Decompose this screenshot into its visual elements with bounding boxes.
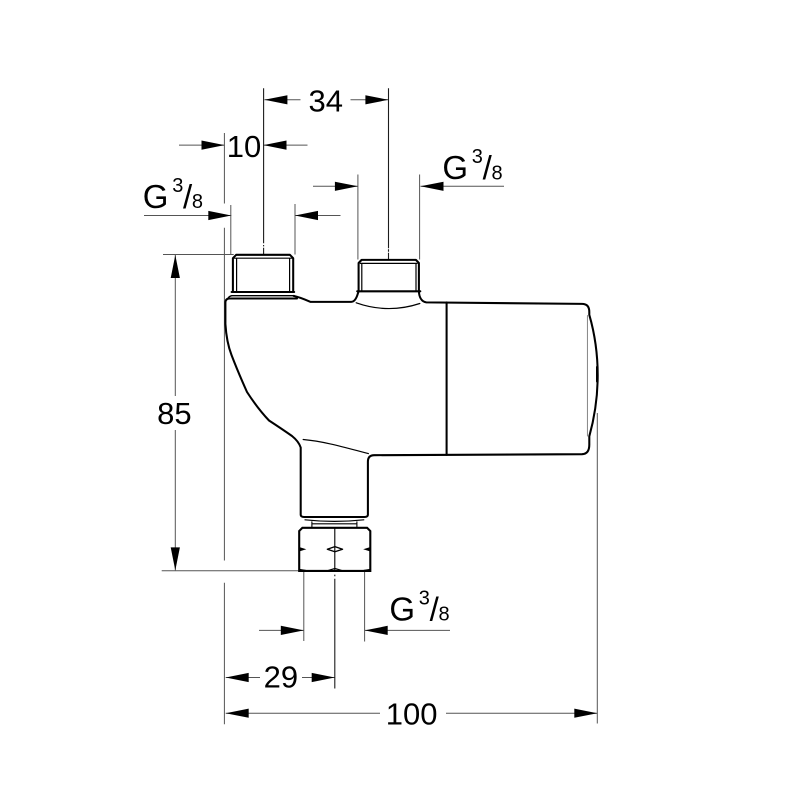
svg-text:G: G bbox=[389, 591, 415, 628]
svg-text:8: 8 bbox=[439, 604, 450, 626]
svg-text:100: 100 bbox=[386, 697, 438, 732]
svg-text:G: G bbox=[442, 149, 468, 186]
svg-text:10: 10 bbox=[227, 129, 261, 164]
svg-text:34: 34 bbox=[308, 84, 342, 119]
svg-text:8: 8 bbox=[492, 162, 503, 184]
svg-text:3: 3 bbox=[419, 588, 430, 610]
svg-text:3: 3 bbox=[172, 175, 183, 197]
svg-text:85: 85 bbox=[157, 396, 191, 431]
svg-text:29: 29 bbox=[264, 659, 298, 694]
svg-text:3: 3 bbox=[472, 146, 483, 168]
svg-text:G: G bbox=[143, 178, 169, 215]
svg-text:8: 8 bbox=[192, 191, 203, 213]
